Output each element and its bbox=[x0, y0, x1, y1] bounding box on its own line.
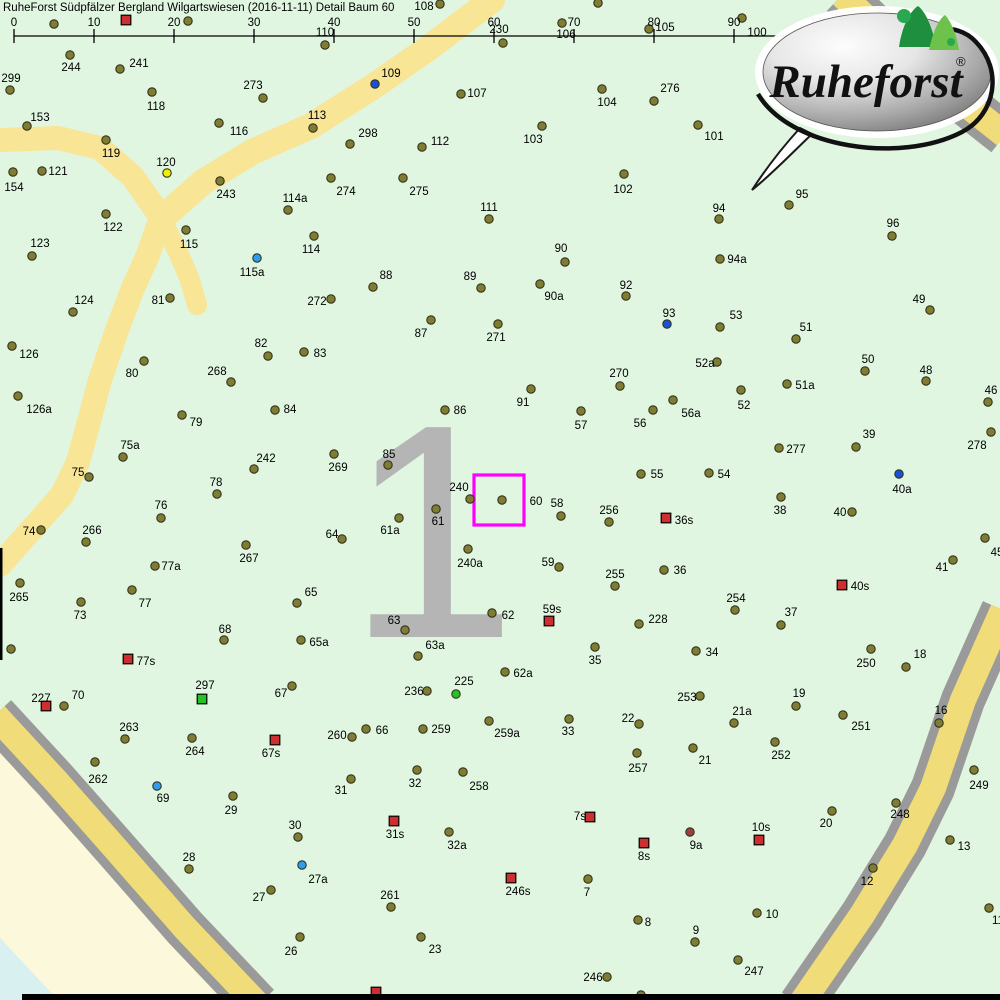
tree-label: 244 bbox=[61, 62, 81, 74]
tree-marker bbox=[9, 168, 17, 176]
tree-label: 59 bbox=[542, 557, 555, 569]
tree-label: 48 bbox=[920, 365, 933, 377]
tree-marker bbox=[852, 443, 860, 451]
tree-label: 75a bbox=[120, 440, 140, 452]
tree-marker bbox=[166, 294, 174, 302]
tree-label: 38 bbox=[774, 505, 787, 517]
tree-marker bbox=[488, 609, 496, 617]
memorial-square-marker bbox=[506, 873, 516, 883]
left-frame-bar bbox=[0, 548, 3, 660]
tree-label: 106 bbox=[556, 29, 575, 41]
tree-marker bbox=[650, 97, 658, 105]
logo-registered-mark: ® bbox=[956, 54, 966, 69]
tree-marker bbox=[16, 579, 24, 587]
tree-label: 267 bbox=[239, 553, 258, 565]
tree-marker bbox=[50, 20, 58, 28]
tree-label: 65a bbox=[309, 637, 329, 649]
tree-marker bbox=[716, 255, 724, 263]
tree-marker bbox=[102, 210, 110, 218]
tree-label: 297 bbox=[195, 680, 214, 692]
tree-label: 94a bbox=[727, 254, 747, 266]
tree-label: 85 bbox=[383, 449, 396, 461]
tree-label: 268 bbox=[207, 366, 226, 378]
tree-label: 31s bbox=[386, 829, 405, 841]
tree-label: 227 bbox=[31, 693, 50, 705]
tree-label: 40a bbox=[892, 484, 912, 496]
tree-label: 62a bbox=[513, 668, 533, 680]
tree-label: 126 bbox=[19, 349, 38, 361]
tree-marker bbox=[663, 320, 671, 328]
tree-label: 241 bbox=[129, 58, 148, 70]
tree-label: 119 bbox=[102, 148, 120, 160]
tree-label: 79 bbox=[190, 417, 203, 429]
tree-marker bbox=[140, 357, 148, 365]
tree-label: 46 bbox=[985, 385, 998, 397]
tree-marker bbox=[730, 719, 738, 727]
green-square-marker bbox=[197, 694, 207, 704]
tree-label: 257 bbox=[628, 763, 647, 775]
tree-label: 153 bbox=[30, 112, 49, 124]
tree-marker bbox=[157, 514, 165, 522]
tree-marker bbox=[417, 933, 425, 941]
tree-label: 67 bbox=[275, 688, 288, 700]
tree-label: 262 bbox=[88, 774, 107, 786]
tree-marker bbox=[119, 453, 127, 461]
memorial-square-marker bbox=[585, 812, 595, 822]
tree-marker bbox=[178, 411, 186, 419]
tree-marker bbox=[423, 687, 431, 695]
tree-marker bbox=[527, 385, 535, 393]
tree-label: 254 bbox=[726, 593, 746, 605]
tree-marker bbox=[229, 792, 237, 800]
tree-marker bbox=[477, 284, 485, 292]
tree-label: 269 bbox=[328, 462, 347, 474]
tree-label: 266 bbox=[82, 525, 101, 537]
tree-label: 77a bbox=[161, 561, 181, 573]
tree-label: 81 bbox=[152, 295, 165, 307]
tree-label: 27a bbox=[308, 874, 328, 886]
tree-label: 255 bbox=[605, 569, 624, 581]
tree-label: 258 bbox=[469, 781, 488, 793]
tree-marker bbox=[753, 909, 761, 917]
scale-tick-label: 90 bbox=[728, 17, 741, 29]
tree-label: 58 bbox=[551, 498, 564, 510]
tree-label: 70 bbox=[72, 690, 85, 702]
tree-label: 104 bbox=[597, 97, 617, 109]
tree-marker bbox=[288, 682, 296, 690]
memorial-square-marker bbox=[270, 735, 280, 745]
tree-label: 270 bbox=[609, 368, 628, 380]
tree-label: 248 bbox=[890, 809, 909, 821]
tree-label: 10s bbox=[752, 822, 771, 834]
tree-marker bbox=[669, 396, 677, 404]
tree-marker bbox=[151, 562, 159, 570]
tree-label: 32a bbox=[447, 840, 467, 852]
tree-marker bbox=[538, 122, 546, 130]
tree-marker bbox=[555, 563, 563, 571]
map-title: RuheForst Südpfälzer Bergland Wilgartswi… bbox=[3, 2, 394, 14]
tree-label: 228 bbox=[648, 614, 667, 626]
tree-marker bbox=[557, 512, 565, 520]
tree-marker bbox=[716, 323, 724, 331]
tree-marker bbox=[577, 407, 585, 415]
tree-label: 246 bbox=[583, 972, 602, 984]
tree-marker bbox=[188, 734, 196, 742]
tree-marker bbox=[731, 606, 739, 614]
tree-label: 9a bbox=[690, 840, 703, 852]
tree-marker bbox=[734, 956, 742, 964]
tree-marker bbox=[737, 386, 745, 394]
tree-label: 126a bbox=[26, 404, 52, 416]
tree-marker bbox=[935, 719, 943, 727]
tree-marker bbox=[7, 645, 15, 653]
tree-label: 108 bbox=[414, 1, 433, 13]
logo-tree-crown-icon bbox=[897, 9, 911, 23]
tree-marker bbox=[715, 215, 723, 223]
tree-label: 53 bbox=[730, 310, 743, 322]
tree-label: 120 bbox=[156, 157, 175, 169]
tree-label: 23 bbox=[429, 944, 442, 956]
tree-marker bbox=[163, 169, 171, 177]
tree-label: 74 bbox=[23, 526, 36, 538]
tree-marker bbox=[14, 392, 22, 400]
tree-label: 93 bbox=[663, 308, 676, 320]
scale-tick-label: 40 bbox=[328, 17, 341, 29]
tree-label: 252 bbox=[771, 750, 790, 762]
tree-marker bbox=[294, 833, 302, 841]
tree-label: 115a bbox=[240, 267, 265, 279]
tree-marker bbox=[848, 508, 856, 516]
tree-label: 27 bbox=[253, 892, 266, 904]
tree-label: 20 bbox=[820, 818, 833, 830]
tree-marker bbox=[60, 702, 68, 710]
scale-tick-label: 70 bbox=[568, 17, 581, 29]
tree-label: 77 bbox=[139, 598, 152, 610]
tree-marker bbox=[565, 715, 573, 723]
tree-marker bbox=[419, 725, 427, 733]
tree-label: 118 bbox=[147, 101, 165, 113]
tree-marker bbox=[452, 690, 460, 698]
tree-marker bbox=[692, 647, 700, 655]
tree-label: 10 bbox=[766, 909, 779, 921]
tree-marker bbox=[259, 94, 267, 102]
tree-marker bbox=[785, 201, 793, 209]
tree-marker bbox=[387, 903, 395, 911]
tree-marker bbox=[91, 758, 99, 766]
tree-label: 61a bbox=[380, 525, 400, 537]
tree-label: 84 bbox=[284, 404, 297, 416]
bottom-frame-bar bbox=[22, 994, 1000, 1000]
tree-label: 242 bbox=[256, 453, 275, 465]
tree-label: 112 bbox=[431, 136, 449, 148]
scale-tick-label: 50 bbox=[408, 17, 421, 29]
tree-label: 21 bbox=[699, 755, 712, 767]
tree-label: 32 bbox=[409, 778, 422, 790]
tree-marker bbox=[250, 465, 258, 473]
memorial-square-marker bbox=[544, 616, 554, 626]
tree-marker bbox=[457, 90, 465, 98]
map-viewport: 1110108230106105100299244241118153116119… bbox=[0, 0, 1000, 1000]
tree-label: 56a bbox=[681, 408, 701, 420]
tree-label: 68 bbox=[219, 624, 232, 636]
tree-label: 30 bbox=[289, 820, 302, 832]
tree-marker bbox=[346, 140, 354, 148]
tree-label: 265 bbox=[9, 592, 28, 604]
tree-marker bbox=[445, 828, 453, 836]
tree-label: 274 bbox=[336, 186, 356, 198]
tree-label: 80 bbox=[126, 368, 139, 380]
tree-marker bbox=[384, 461, 392, 469]
logo-brand-text: Ruheforst bbox=[768, 56, 964, 108]
tree-marker bbox=[371, 80, 379, 88]
tree-label: 113 bbox=[308, 110, 326, 122]
tree-label: 34 bbox=[706, 647, 719, 659]
tree-marker bbox=[501, 668, 509, 676]
tree-marker bbox=[775, 444, 783, 452]
tree-label: 39 bbox=[863, 429, 876, 441]
tree-marker bbox=[242, 541, 250, 549]
tree-marker bbox=[633, 749, 641, 757]
tree-marker bbox=[598, 85, 606, 93]
tree-marker bbox=[499, 39, 507, 47]
tree-label: 19 bbox=[793, 688, 806, 700]
tree-label: 89 bbox=[464, 271, 477, 283]
tree-label: 251 bbox=[851, 721, 870, 733]
tree-label: 51 bbox=[800, 322, 813, 334]
tree-marker bbox=[116, 65, 124, 73]
tree-label: 56 bbox=[634, 418, 647, 430]
tree-label: 102 bbox=[613, 184, 632, 196]
tree-marker bbox=[622, 292, 630, 300]
tree-marker bbox=[347, 775, 355, 783]
tree-marker bbox=[369, 283, 377, 291]
memorial-square-marker bbox=[639, 838, 649, 848]
tree-marker bbox=[792, 702, 800, 710]
tree-marker bbox=[485, 717, 493, 725]
tree-marker bbox=[536, 280, 544, 288]
tree-label: 263 bbox=[119, 722, 138, 734]
tree-label: 271 bbox=[486, 332, 505, 344]
tree-marker bbox=[777, 621, 785, 629]
tree-marker bbox=[926, 306, 934, 314]
tree-label: 26 bbox=[285, 946, 298, 958]
tree-marker bbox=[220, 636, 228, 644]
tree-label: 86 bbox=[454, 405, 467, 417]
tree-marker bbox=[792, 335, 800, 343]
tree-marker bbox=[401, 626, 409, 634]
memorial-square-marker bbox=[661, 513, 671, 523]
tree-marker bbox=[427, 316, 435, 324]
tree-label: 122 bbox=[103, 222, 122, 234]
tree-label: 55 bbox=[651, 469, 664, 481]
tree-label: 36s bbox=[675, 515, 694, 527]
tree-marker bbox=[635, 720, 643, 728]
tree-label: 73 bbox=[74, 610, 87, 622]
tree-label: 249 bbox=[969, 780, 988, 792]
tree-marker bbox=[591, 643, 599, 651]
tree-label: 275 bbox=[409, 186, 428, 198]
tree-label: 60 bbox=[530, 496, 543, 508]
scale-tick-label: 0 bbox=[11, 17, 17, 29]
tree-label: 21a bbox=[732, 706, 752, 718]
tree-marker bbox=[185, 865, 193, 873]
tree-marker bbox=[949, 556, 957, 564]
tree-marker bbox=[498, 496, 506, 504]
tree-marker bbox=[432, 505, 440, 513]
tree-marker bbox=[77, 598, 85, 606]
tree-marker bbox=[981, 534, 989, 542]
tree-marker bbox=[634, 916, 642, 924]
tree-label: 250 bbox=[856, 658, 875, 670]
tree-marker bbox=[696, 692, 704, 700]
tree-label: 57 bbox=[575, 420, 588, 432]
tree-label: 11 bbox=[992, 915, 1000, 927]
tree-marker bbox=[362, 725, 370, 733]
tree-label: 253 bbox=[677, 692, 696, 704]
tree-label: 278 bbox=[967, 440, 986, 452]
tree-marker bbox=[395, 514, 403, 522]
tree-label: 259 bbox=[431, 724, 450, 736]
tree-label: 299 bbox=[1, 73, 20, 85]
tree-marker bbox=[436, 0, 444, 8]
logo-tree-dot-icon bbox=[947, 38, 955, 46]
tree-label: 13 bbox=[958, 841, 971, 853]
tree-label: 260 bbox=[327, 730, 346, 742]
tree-marker bbox=[327, 295, 335, 303]
tree-marker bbox=[309, 124, 317, 132]
tree-marker bbox=[892, 799, 900, 807]
memorial-square-marker bbox=[837, 580, 847, 590]
tree-label: 7 bbox=[584, 887, 590, 899]
tree-label: 69 bbox=[157, 793, 170, 805]
tree-label: 261 bbox=[380, 890, 399, 902]
tree-label: 111 bbox=[480, 202, 497, 214]
tree-marker bbox=[464, 545, 472, 553]
scale-tick-label: 30 bbox=[248, 17, 261, 29]
tree-marker bbox=[182, 226, 190, 234]
tree-marker bbox=[686, 828, 694, 836]
tree-label: 7s bbox=[574, 811, 586, 823]
tree-label: 36 bbox=[674, 565, 687, 577]
tree-label: 8s bbox=[638, 851, 650, 863]
tree-marker bbox=[946, 836, 954, 844]
tree-marker bbox=[227, 378, 235, 386]
tree-marker bbox=[611, 582, 619, 590]
tree-marker bbox=[605, 518, 613, 526]
scale-tick-label: 60 bbox=[488, 17, 501, 29]
tree-label: 115 bbox=[180, 239, 198, 251]
tree-label: 91 bbox=[517, 397, 530, 409]
tree-marker bbox=[777, 493, 785, 501]
memorial-square-marker bbox=[121, 15, 131, 25]
tree-marker bbox=[861, 367, 869, 375]
tree-label: 236 bbox=[404, 686, 423, 698]
tree-label: 64 bbox=[326, 529, 339, 541]
tree-label: 95 bbox=[796, 189, 809, 201]
tree-marker bbox=[414, 652, 422, 660]
tree-marker bbox=[867, 645, 875, 653]
tree-marker bbox=[418, 143, 426, 151]
tree-marker bbox=[649, 406, 657, 414]
tree-label: 240 bbox=[449, 482, 468, 494]
tree-label: 277 bbox=[786, 444, 805, 456]
tree-label: 62 bbox=[502, 610, 515, 622]
tree-label: 121 bbox=[48, 166, 67, 178]
tree-label: 107 bbox=[467, 88, 486, 100]
tree-label: 37 bbox=[785, 607, 798, 619]
tree-label: 65 bbox=[305, 587, 318, 599]
tree-label: 83 bbox=[314, 348, 327, 360]
tree-label: 82 bbox=[255, 338, 268, 350]
tree-marker bbox=[869, 864, 877, 872]
tree-label: 52 bbox=[738, 400, 751, 412]
tree-label: 45 bbox=[991, 547, 1000, 559]
tree-marker bbox=[284, 206, 292, 214]
tree-marker bbox=[271, 406, 279, 414]
tree-label: 12 bbox=[861, 876, 874, 888]
tree-label: 63 bbox=[388, 615, 401, 627]
tree-label: 92 bbox=[620, 280, 633, 292]
tree-marker bbox=[466, 495, 474, 503]
tree-marker bbox=[594, 0, 602, 7]
tree-marker bbox=[216, 177, 224, 185]
tree-marker bbox=[413, 766, 421, 774]
tree-marker bbox=[558, 19, 566, 27]
tree-label: 88 bbox=[380, 270, 393, 282]
tree-label: 54 bbox=[718, 469, 731, 481]
tree-label: 8 bbox=[645, 917, 651, 929]
tree-label: 247 bbox=[744, 966, 763, 978]
tree-marker bbox=[267, 886, 275, 894]
tree-label: 272 bbox=[307, 296, 326, 308]
tree-marker bbox=[694, 121, 702, 129]
tree-label: 276 bbox=[660, 83, 679, 95]
tree-label: 28 bbox=[183, 852, 196, 864]
tree-marker bbox=[37, 526, 45, 534]
tree-marker bbox=[321, 41, 329, 49]
tree-marker bbox=[970, 766, 978, 774]
tree-label: 101 bbox=[704, 131, 723, 143]
tree-marker bbox=[561, 258, 569, 266]
tree-label: 243 bbox=[216, 189, 235, 201]
tree-label: 76 bbox=[155, 500, 168, 512]
tree-label: 35 bbox=[589, 655, 602, 667]
tree-label: 90 bbox=[555, 243, 568, 255]
tree-marker bbox=[828, 807, 836, 815]
tree-label: 94 bbox=[713, 203, 726, 215]
tree-label: 61 bbox=[432, 516, 445, 528]
tree-label: 16 bbox=[935, 705, 948, 717]
tree-marker bbox=[459, 768, 467, 776]
tree-label: 246s bbox=[506, 886, 531, 898]
tree-marker bbox=[987, 428, 995, 436]
tree-label: 100 bbox=[747, 27, 766, 39]
tree-marker bbox=[66, 51, 74, 59]
tree-marker bbox=[984, 398, 992, 406]
tree-label: 273 bbox=[243, 80, 262, 92]
tree-label: 66 bbox=[376, 725, 389, 737]
tree-marker bbox=[705, 469, 713, 477]
tree-marker bbox=[153, 782, 161, 790]
tree-label: 103 bbox=[523, 134, 542, 146]
forest-map: 1110108230106105100299244241118153116119… bbox=[0, 0, 1000, 1000]
tree-label: 49 bbox=[913, 294, 926, 306]
tree-marker bbox=[28, 252, 36, 260]
tree-label: 256 bbox=[599, 505, 618, 517]
tree-marker bbox=[895, 470, 903, 478]
tree-label: 225 bbox=[454, 676, 473, 688]
tree-marker bbox=[635, 620, 643, 628]
